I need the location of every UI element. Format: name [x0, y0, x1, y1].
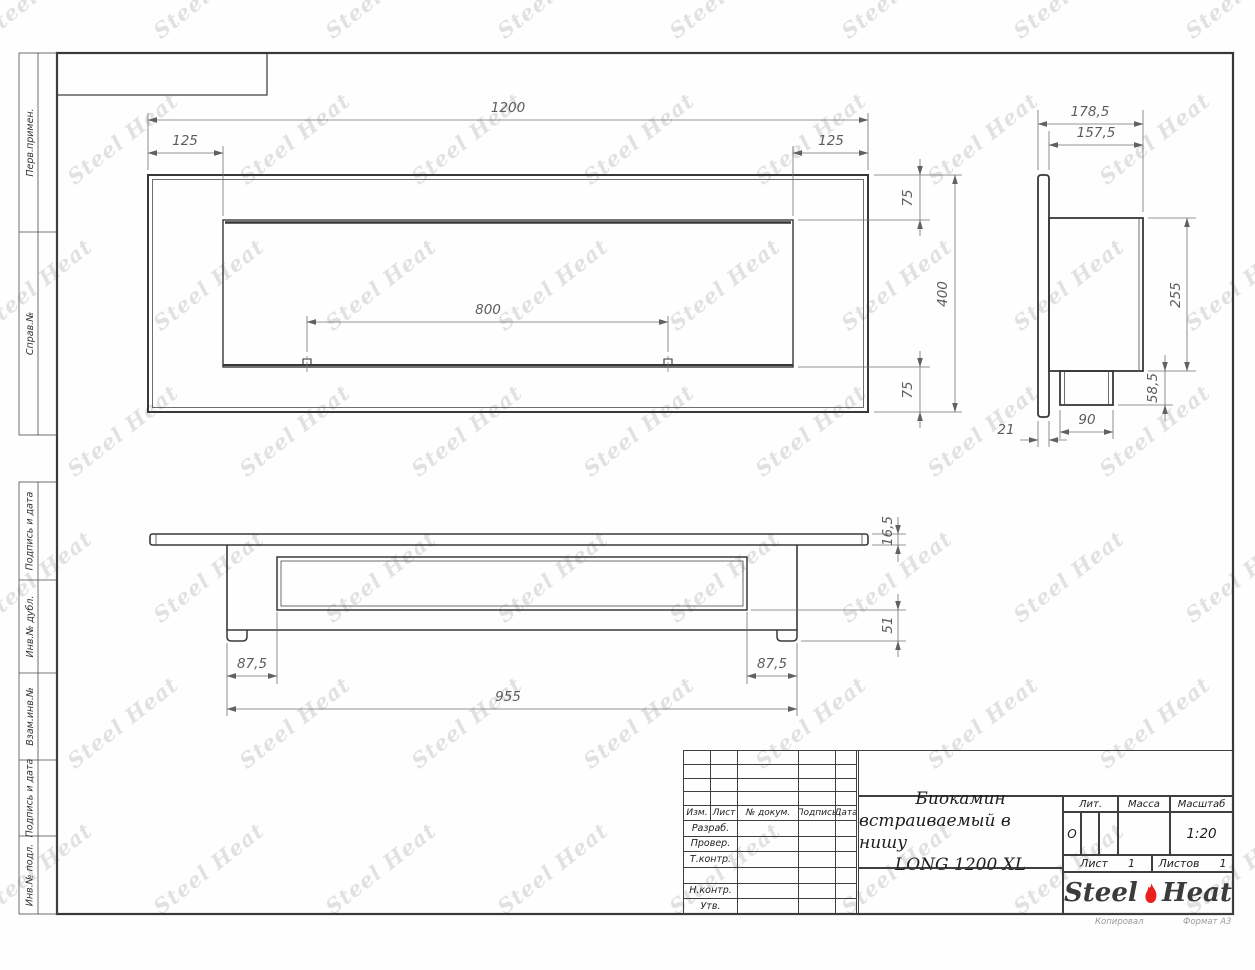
massa-value-cell — [1118, 812, 1170, 855]
revision-cell — [799, 751, 836, 765]
role-label-cell: Разраб. — [684, 821, 738, 837]
rev-header-list: Лист — [711, 806, 738, 821]
revision-cell — [684, 792, 711, 806]
masshtab-value-cell: 1:20 — [1170, 812, 1233, 855]
side-burner-box — [1060, 371, 1113, 405]
role-date-cell — [836, 884, 857, 900]
revision-cell — [836, 779, 857, 793]
role-date-cell — [836, 821, 857, 837]
sheet-number-value: 1 — [1128, 857, 1135, 870]
revision-cell — [711, 751, 738, 765]
front-view: 1200 125 125 800 75 400 75 — [148, 100, 962, 428]
sheet-number-label: Лист — [1080, 857, 1108, 870]
role-date-cell — [836, 899, 857, 915]
role-date-cell — [836, 852, 857, 868]
revision-cell — [836, 765, 857, 779]
lit-header: Лит. — [1063, 796, 1118, 812]
revision-cell — [684, 751, 711, 765]
strip-label-podpis-data-1: Подпись и дата — [25, 491, 36, 570]
role-doc-cell — [738, 837, 799, 853]
bottom-foot-right — [777, 630, 797, 641]
copy-note: Копировал — [1095, 917, 1144, 927]
role-signature-cell — [799, 852, 836, 868]
side-flange — [1038, 175, 1049, 417]
sheets-total-label: Листов — [1158, 857, 1199, 870]
company-logo: Steel Heat — [1063, 872, 1233, 914]
role-label-cell — [684, 868, 738, 884]
role-signature-cell — [799, 837, 836, 853]
strip-label-inv-dubl: Инв.№ дубл. — [25, 596, 36, 658]
role-label-cell: Провер. — [684, 837, 738, 853]
front-opening — [223, 220, 793, 367]
strip-label-inv-podl: Инв.№ подл. — [25, 844, 36, 907]
revision-cell — [799, 792, 836, 806]
revision-cell — [738, 765, 799, 779]
strip-label-perv-primen: Перв.примен. — [25, 108, 36, 176]
bottom-window — [277, 557, 747, 610]
side-view: 178,5 157,5 255 58,5 90 21 — [997, 104, 1196, 447]
role-label-cell: Т.контр. — [684, 852, 738, 868]
revision-cell — [799, 779, 836, 793]
revision-cell — [738, 779, 799, 793]
title-block: Изм.Лист№ докум.ПодписьДатаРазраб.Провер… — [683, 750, 1233, 914]
bottom-flange-plate — [150, 534, 868, 545]
role-signature-cell — [799, 821, 836, 837]
dim-front-margin-top: 75 — [900, 189, 916, 206]
role-label-cell: Н.контр. — [684, 884, 738, 900]
sheets-total-value: 1 — [1220, 857, 1227, 870]
titleblock-left-table: Изм.Лист№ докум.ПодписьДатаРазраб.Провер… — [683, 750, 858, 914]
dim-front-width-total: 1200 — [491, 100, 525, 116]
strip-label-vzam-inv: Взам.инв.№ — [25, 687, 36, 746]
revision-cell — [738, 792, 799, 806]
sheets-total-cell: Листов 1 — [1152, 855, 1233, 872]
doc-title-line1: Биокамин — [915, 788, 1005, 810]
format-note: Формат А3 — [1183, 917, 1231, 927]
dim-bottom-inset-right: 87,5 — [757, 656, 787, 672]
role-date-cell — [836, 868, 857, 884]
revision-cell — [836, 792, 857, 806]
dim-front-margin-bottom: 75 — [900, 381, 916, 398]
rev-header-date: Дата — [836, 806, 857, 821]
dim-bottom-flange-thickness: 16,5 — [880, 516, 896, 546]
role-date-cell — [836, 837, 857, 853]
revision-cell — [799, 765, 836, 779]
strip-label-sprav-no: Справ.№ — [25, 312, 36, 355]
bottom-view: 16,5 51 87,5 87,5 955 — [150, 516, 906, 716]
lit-value-cell: О — [1063, 812, 1081, 855]
role-label-cell: Утв. — [684, 899, 738, 915]
rev-header-doc: № докум. — [738, 806, 799, 821]
side-body — [1049, 218, 1143, 371]
left-strip: Перв.примен. Справ.№ Подпись и дата Инв.… — [19, 53, 57, 914]
role-doc-cell — [738, 868, 799, 884]
dim-side-depth-body: 157,5 — [1077, 125, 1116, 141]
organization-cell — [858, 868, 1063, 914]
dim-front-offset-right: 125 — [818, 133, 844, 149]
masshtab-header: Масштаб — [1170, 796, 1233, 812]
revision-cell — [738, 751, 799, 765]
role-signature-cell — [799, 868, 836, 884]
dim-side-depth-total: 178,5 — [1071, 104, 1110, 120]
drawing-sheet: Steel HeatSteel HeatSteel HeatSteel Heat… — [0, 0, 1255, 970]
dim-bottom-body-width: 955 — [495, 689, 521, 705]
dim-front-offset-left: 125 — [172, 133, 198, 149]
dim-side-burner-height: 58,5 — [1145, 373, 1161, 403]
strip-label-podpis-data-2: Подпись и дата — [25, 758, 36, 837]
dim-front-opening-width: 800 — [475, 302, 501, 318]
flame-icon — [1142, 878, 1158, 908]
massa-header: Масса — [1118, 796, 1170, 812]
dim-side-height-body: 255 — [1168, 282, 1184, 308]
rev-header-izm: Изм. — [684, 806, 711, 821]
role-doc-cell — [738, 852, 799, 868]
document-title-cell: Биокамин встраиваемый в нишу LONG 1200 X… — [858, 796, 1063, 868]
dim-front-height-total: 400 — [935, 281, 951, 307]
dim-side-flange-thickness: 21 — [997, 422, 1014, 438]
revision-cell — [684, 765, 711, 779]
role-doc-cell — [738, 884, 799, 900]
dim-side-burner-width: 90 — [1078, 412, 1095, 428]
role-signature-cell — [799, 884, 836, 900]
sheet-number-cell: Лист 1 — [1063, 855, 1152, 872]
revision-cell — [711, 765, 738, 779]
doc-title-line2: встраиваемый в нишу — [859, 810, 1062, 854]
role-doc-cell — [738, 821, 799, 837]
lit-cell-2 — [1081, 812, 1099, 855]
top-left-stamp-box — [57, 53, 267, 95]
revision-cell — [684, 779, 711, 793]
logo-word-steel: Steel — [1064, 878, 1138, 908]
revision-cell — [836, 751, 857, 765]
revision-cell — [711, 779, 738, 793]
dim-bottom-clearance: 51 — [880, 616, 896, 633]
dim-bottom-inset-left: 87,5 — [237, 656, 267, 672]
logo-word-heat: Heat — [1162, 878, 1232, 908]
lit-cell-3 — [1099, 812, 1118, 855]
bottom-foot-left — [227, 630, 247, 641]
revision-cell — [711, 792, 738, 806]
role-doc-cell — [738, 899, 799, 915]
rev-header-podpis: Подпись — [799, 806, 836, 821]
role-signature-cell — [799, 899, 836, 915]
